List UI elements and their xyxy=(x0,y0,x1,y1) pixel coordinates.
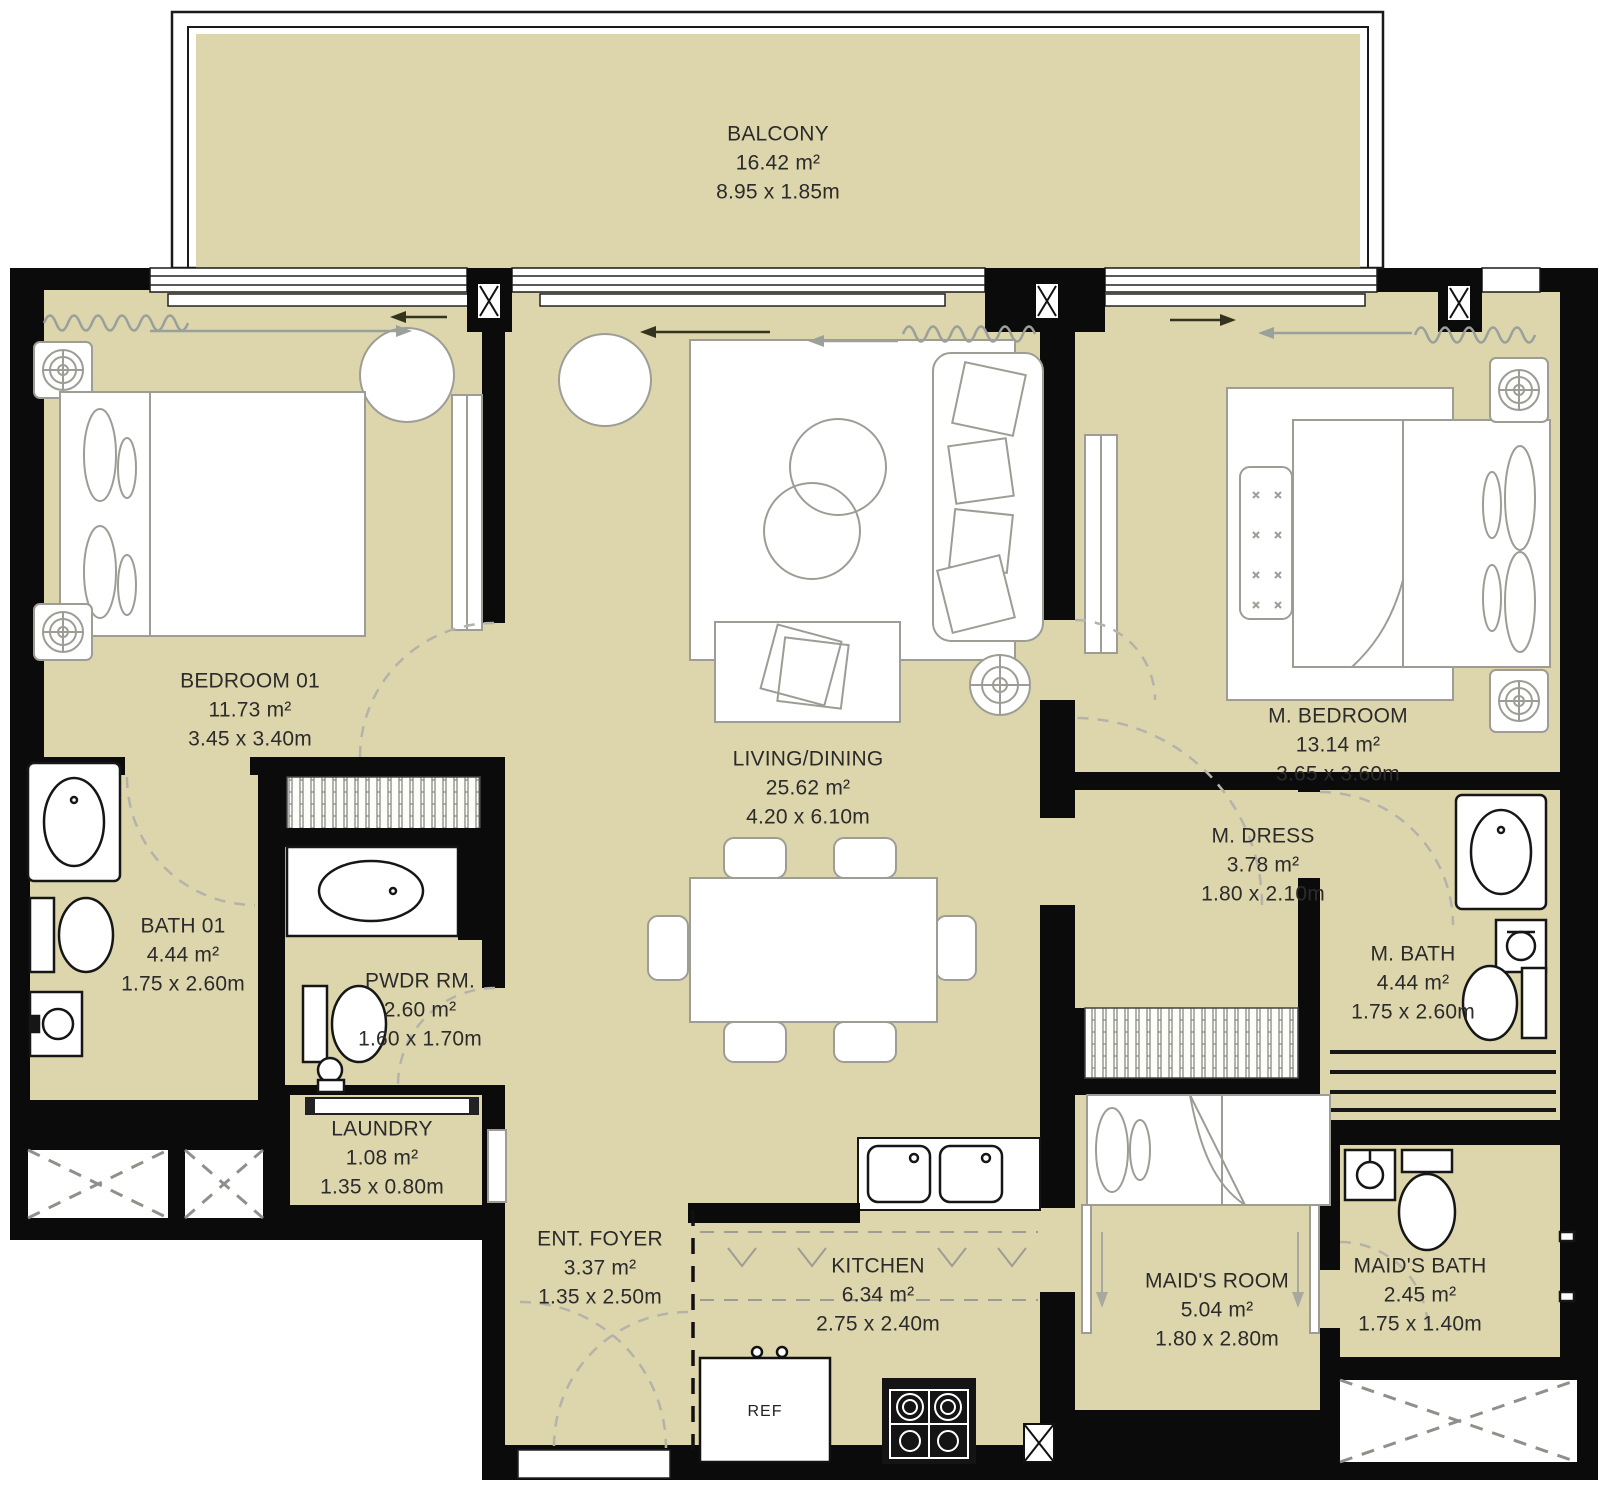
room-label-entrance-foyer: ENT. FOYER 3.37 m² 1.35 x 2.50m xyxy=(537,1225,663,1312)
window-master-bedroom xyxy=(1105,268,1377,306)
room-label-laundry: LAUNDRY 1.08 m² 1.35 x 0.80m xyxy=(320,1115,444,1202)
pillow xyxy=(948,438,1014,504)
window-side xyxy=(1482,268,1540,292)
room-label-master-bath: M. BATH 4.44 m² 1.75 x 2.60m xyxy=(1351,940,1475,1027)
laundry-door-panel xyxy=(488,1130,506,1202)
room-label-maids-bath: MAID'S BATH 2.45 m² 1.75 x 1.40m xyxy=(1354,1252,1487,1339)
room-name: M. BATH xyxy=(1351,940,1475,969)
room-label-living-dining: LIVING/DINING 25.62 m² 4.20 x 6.10m xyxy=(733,745,884,832)
room-label-maids-room: MAID'S ROOM 5.04 m² 1.80 x 2.80m xyxy=(1145,1267,1289,1354)
room-name: BALCONY xyxy=(716,120,840,149)
pillow xyxy=(1483,472,1501,538)
entrance-threshold xyxy=(518,1450,670,1478)
sink-icon xyxy=(30,992,82,1056)
room-name: M. BEDROOM xyxy=(1268,702,1408,731)
wall-accessory xyxy=(1560,1292,1574,1301)
shaft-box xyxy=(28,1150,168,1218)
pillow xyxy=(118,555,136,615)
room-dims: 1.35 x 2.50m xyxy=(537,1283,663,1312)
room-name: M. DRESS xyxy=(1201,822,1325,851)
sliding-door-rail xyxy=(1082,1205,1091,1333)
pillow xyxy=(1505,552,1535,652)
dining-table xyxy=(690,878,937,1022)
pillow xyxy=(1130,1120,1150,1180)
bathtub-icon xyxy=(28,763,120,881)
room-label-master-bedroom: M. BEDROOM 13.14 m² 3.65 x 3.60m xyxy=(1268,702,1408,789)
bed xyxy=(60,392,365,636)
sink-icon xyxy=(318,1058,344,1092)
bathtub-icon xyxy=(1456,795,1546,909)
tv-console xyxy=(1085,435,1117,653)
room-label-bedroom-01: BEDROOM 01 11.73 m² 3.45 x 3.40m xyxy=(180,667,320,754)
room-dims: 1.75 x 2.60m xyxy=(1351,998,1475,1027)
room-name: BEDROOM 01 xyxy=(180,667,320,696)
room-area: 1.08 m² xyxy=(320,1144,444,1173)
sliding-door-rail xyxy=(1310,1205,1319,1333)
chair xyxy=(834,1022,896,1062)
room-dims: 3.65 x 3.60m xyxy=(1268,760,1408,789)
sofa xyxy=(933,353,1043,641)
window-living xyxy=(512,268,985,306)
pillow xyxy=(952,362,1026,436)
nightstand xyxy=(34,604,92,660)
room-label-master-dress: M. DRESS 3.78 m² 1.80 x 2.10m xyxy=(1201,822,1325,909)
room-name: MAID'S ROOM xyxy=(1145,1267,1289,1296)
room-dims: 1.60 x 1.70m xyxy=(358,1025,482,1054)
room-label-bath-01: BATH 01 4.44 m² 1.75 x 2.60m xyxy=(121,912,245,999)
room-dims: 3.45 x 3.40m xyxy=(180,725,320,754)
nightstand xyxy=(34,342,92,398)
pillow xyxy=(118,438,136,498)
toilet-icon xyxy=(1399,1150,1455,1250)
floor-lamp xyxy=(970,655,1030,715)
room-name: ENT. FOYER xyxy=(537,1225,663,1254)
pillow xyxy=(937,555,1015,633)
sink-icon xyxy=(1345,1150,1395,1200)
room-area: 4.44 m² xyxy=(121,941,245,970)
room-dims: 4.20 x 6.10m xyxy=(733,803,884,832)
room-area: 2.45 m² xyxy=(1354,1281,1487,1310)
pillow xyxy=(1505,446,1535,550)
room-name: PWDR RM. xyxy=(358,967,482,996)
room-area: 25.62 m² xyxy=(733,774,884,803)
stove-icon xyxy=(882,1378,976,1464)
refrigerator-label: REF xyxy=(748,1403,783,1421)
room-name: BATH 01 xyxy=(121,912,245,941)
shaft-box xyxy=(185,1150,263,1218)
bench xyxy=(1240,467,1292,619)
window-bedroom-01 xyxy=(150,268,468,306)
side-table xyxy=(360,328,454,422)
wall-pier xyxy=(1438,268,1482,332)
pillow xyxy=(84,409,116,501)
side-table xyxy=(559,334,651,426)
room-dims: 2.75 x 2.40m xyxy=(816,1310,940,1339)
room-name: LIVING/DINING xyxy=(733,745,884,774)
sink-icon xyxy=(1496,920,1546,972)
room-area: 2.60 m² xyxy=(358,996,482,1025)
floor-plan: BALCONY 16.42 m² 8.95 x 1.85m BEDROOM 01… xyxy=(0,0,1608,1500)
tv-bench xyxy=(715,622,900,722)
chair xyxy=(724,1022,786,1062)
room-dims: 1.75 x 1.40m xyxy=(1354,1310,1487,1339)
wall-pier xyxy=(467,268,512,332)
wall-pier xyxy=(985,268,1105,332)
pillow xyxy=(1096,1108,1128,1192)
room-area: 11.73 m² xyxy=(180,696,320,725)
room-name: KITCHEN xyxy=(816,1252,940,1281)
wall-stub xyxy=(688,1203,860,1223)
nightstand xyxy=(1490,358,1548,422)
room-label-powder-room: PWDR RM. 2.60 m² 1.60 x 1.70m xyxy=(358,967,482,1054)
closet-strip xyxy=(452,395,482,630)
room-area: 13.14 m² xyxy=(1268,731,1408,760)
nightstand xyxy=(1490,670,1548,732)
room-dims: 1.80 x 2.10m xyxy=(1201,880,1325,909)
room-dims: 1.75 x 2.60m xyxy=(121,970,245,999)
bed xyxy=(1087,1095,1330,1205)
room-dims: 1.35 x 0.80m xyxy=(320,1173,444,1202)
louver-closet-mdress xyxy=(1085,1008,1298,1078)
chair xyxy=(936,916,976,980)
toilet-icon xyxy=(30,898,113,972)
chair xyxy=(648,916,688,980)
room-name: LAUNDRY xyxy=(320,1115,444,1144)
chair xyxy=(834,838,896,878)
room-dims: 1.80 x 2.80m xyxy=(1145,1325,1289,1354)
room-area: 6.34 m² xyxy=(816,1281,940,1310)
laundry-shelf xyxy=(306,1098,478,1114)
wall-accessory xyxy=(1560,1232,1574,1241)
room-area: 3.78 m² xyxy=(1201,851,1325,880)
bed xyxy=(1293,420,1550,667)
room-area: 4.44 m² xyxy=(1351,969,1475,998)
room-area: 5.04 m² xyxy=(1145,1296,1289,1325)
toilet-icon xyxy=(1463,966,1546,1040)
room-area: 16.42 m² xyxy=(716,149,840,178)
bathtub-icon xyxy=(287,847,458,936)
chair xyxy=(724,838,786,878)
duct-box xyxy=(1024,1424,1054,1462)
shaft-box xyxy=(1340,1380,1577,1462)
pillow xyxy=(1483,565,1501,631)
room-area: 3.37 m² xyxy=(537,1254,663,1283)
room-label-kitchen: KITCHEN 6.34 m² 2.75 x 2.40m xyxy=(816,1252,940,1339)
room-name: MAID'S BATH xyxy=(1354,1252,1487,1281)
room-label-balcony: BALCONY 16.42 m² 8.95 x 1.85m xyxy=(716,120,840,207)
room-dims: 8.95 x 1.85m xyxy=(716,178,840,207)
